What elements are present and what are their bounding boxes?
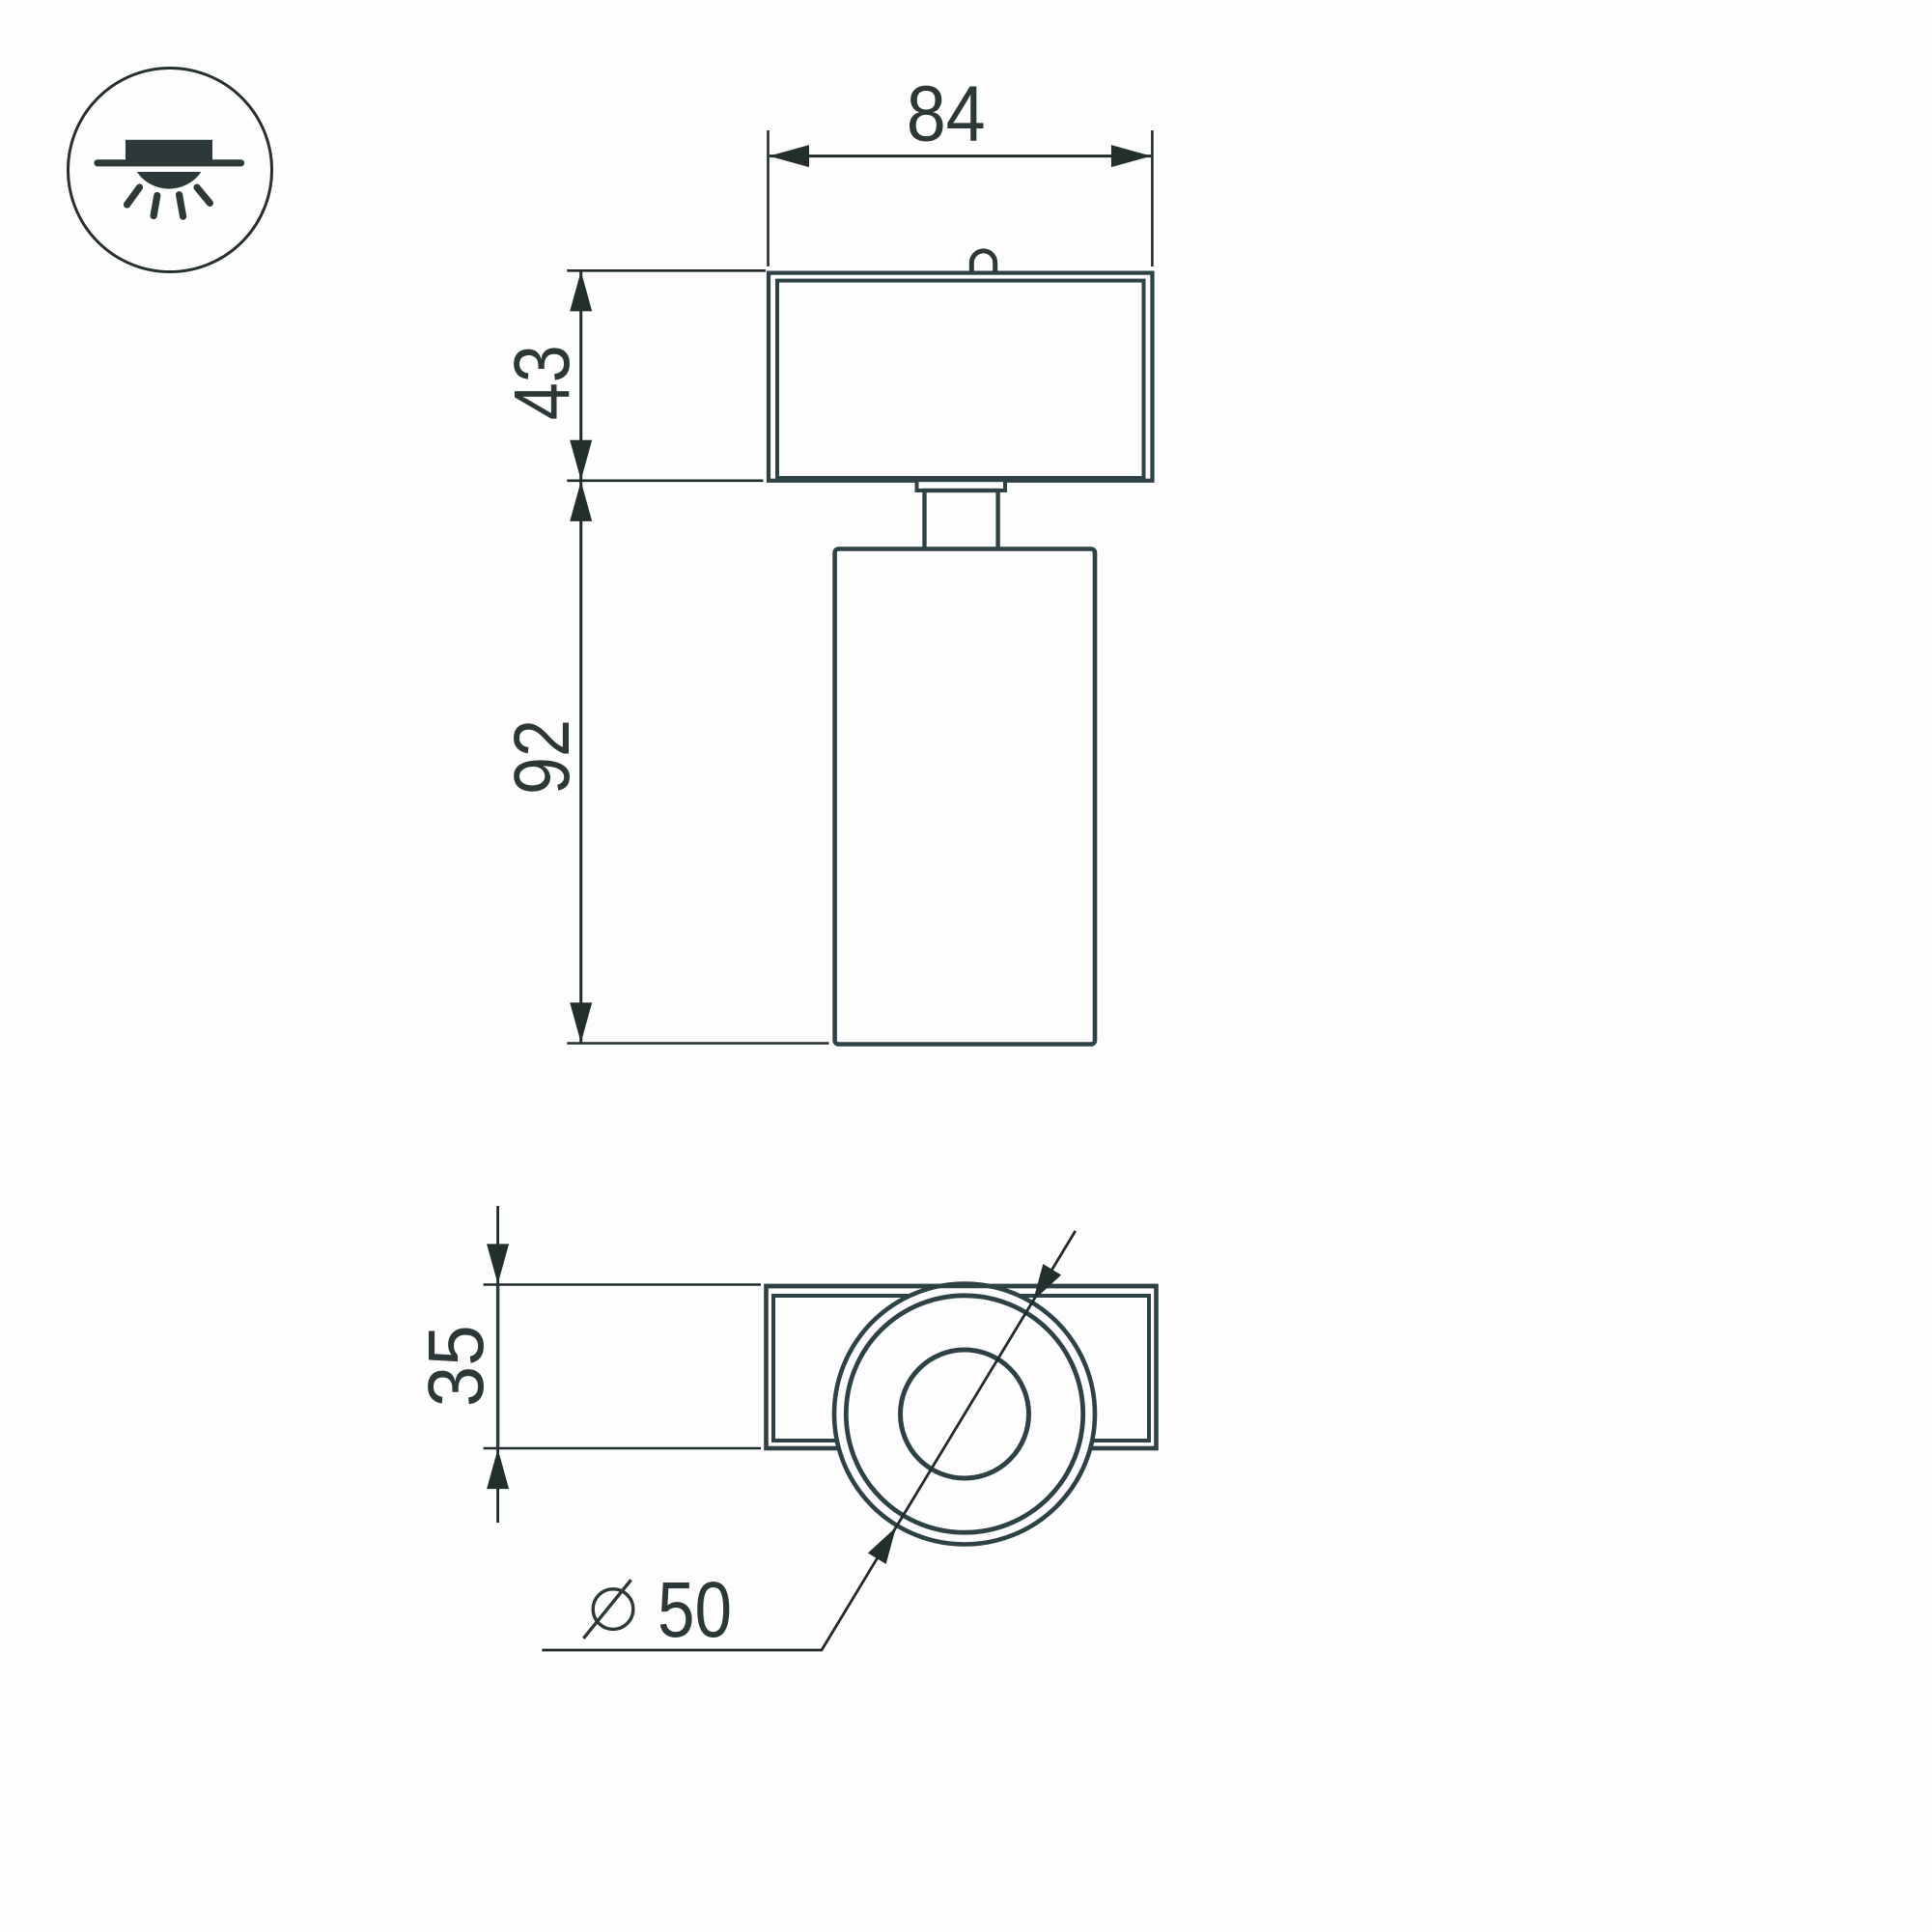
svg-text:50: 50 <box>658 1566 732 1654</box>
svg-text:43: 43 <box>498 345 586 420</box>
svg-text:35: 35 <box>412 1325 500 1407</box>
svg-text:84: 84 <box>907 70 986 158</box>
svg-text:92: 92 <box>498 719 586 795</box>
